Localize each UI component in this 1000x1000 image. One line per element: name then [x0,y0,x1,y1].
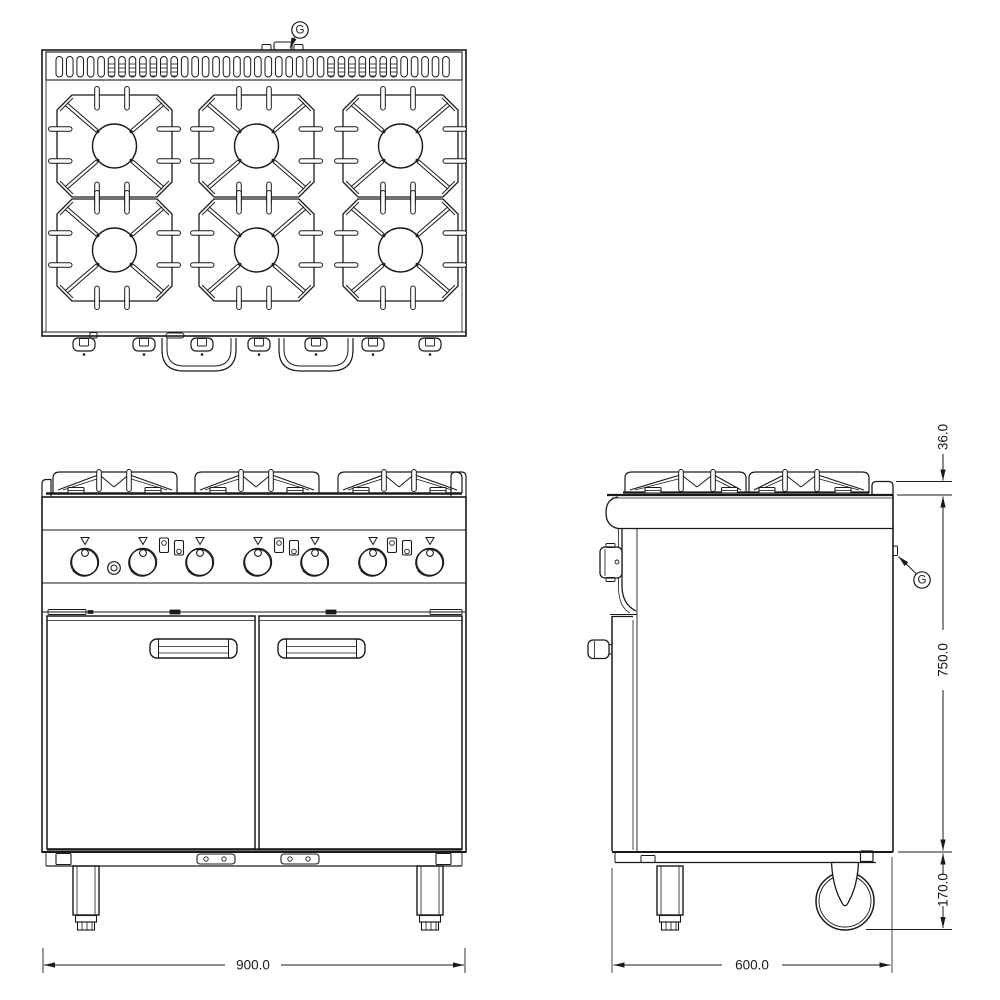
burner-grate [335,87,467,206]
door-handle-side-profile [588,640,612,659]
dimension-heights [866,454,952,930]
burner-grate [49,87,181,206]
dimension-base-height: 170.0 [936,873,951,907]
adjustable-leg [73,866,99,930]
range-top-body [42,50,466,336]
adjustable-leg [657,866,683,930]
oven-doors [47,616,462,850]
side-view: G 36.0 750.0 170.0 600.0 [588,424,952,973]
dimension-overall-width: 900.0 [236,958,270,973]
gas-callout-letter-side: G [918,575,927,587]
pan-support-profile [195,470,319,494]
gas-range-orthographic-drawing: G 900.0 G 36.0 750.0 170.0 600.0 [0,0,1000,1000]
pan-support-profile [749,470,869,494]
piezo-ignition-button [108,562,121,575]
burner-control-knob [359,538,387,577]
pan-support-profile [53,470,177,494]
pilot-indicator-pair [275,538,299,555]
front-body [42,472,466,852]
burner-control-knob [301,538,329,577]
side-front-face [588,529,637,853]
gas-inlet-top [262,37,303,50]
pan-support-profile [338,470,462,494]
dimension-rear-upstand-height: 36.0 [936,424,951,450]
burner-control-knob [244,538,272,577]
oven-door-handle [278,639,365,658]
pilot-indicator-pair [388,538,412,555]
base-strip-side [612,851,893,863]
burner-grate [191,191,323,310]
pan-support-profile [625,470,746,494]
control-panel [71,538,444,577]
adjustable-leg [417,866,443,930]
knob-side-profile [600,544,622,582]
burner-grate [49,191,181,310]
top-view: G [42,22,467,371]
vent-strip [46,52,462,80]
burner-grate [191,87,323,206]
base-strip-front [42,852,466,866]
gas-callout-letter-top: G [296,25,305,37]
dimension-overall-depth: 600.0 [735,958,769,973]
dimension-body-height: 750.0 [936,643,951,677]
caster-wheel [816,863,874,931]
oven-door-handle [150,639,237,658]
burner-control-knob [129,538,157,577]
side-rear-wall [893,495,916,852]
technical-drawing-page: G 900.0 G 36.0 750.0 170.0 600.0 [0,0,1000,1000]
burner-control-knob [186,538,214,577]
burner-control-knob [71,538,99,577]
pilot-indicator-pair [160,538,184,555]
burner-grate [335,191,467,310]
burner-control-knob [416,538,444,577]
front-view: 900.0 [42,470,466,974]
